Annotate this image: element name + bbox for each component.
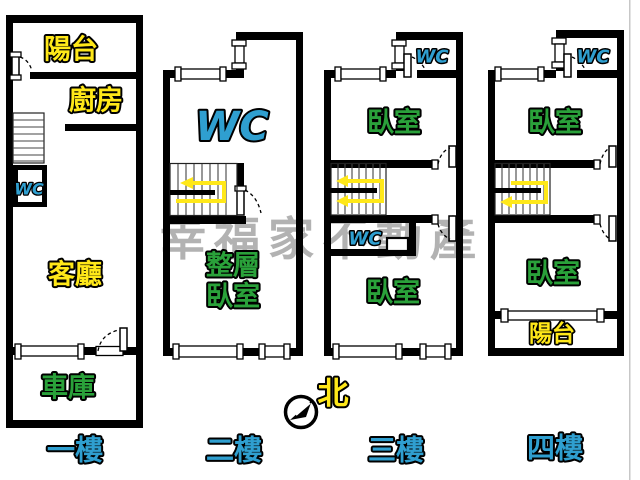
room-label-bedroom-upper-4f: 臥室 (528, 107, 582, 139)
room-label-bedroom-line1-2f: 整層 (206, 251, 260, 282)
floor-label-3f: 三樓 (368, 434, 424, 467)
wc-fixture-3f (387, 238, 408, 251)
upper-wall-window-2f (175, 67, 226, 81)
floor-label-4f: 四樓 (527, 432, 583, 465)
upper-wall-window-3f (335, 67, 386, 81)
living-room-window (15, 344, 84, 359)
staircase-3f (324, 164, 386, 216)
upper-wall-window-4f (495, 67, 544, 81)
stair-door-2f (235, 186, 261, 215)
compass: 北 (286, 376, 349, 428)
bedroom-door-upper-3f (432, 146, 456, 169)
room-label-bedroom-lower-4f: 臥室 (526, 258, 580, 290)
floor-1-walls (6, 15, 143, 428)
bottom-window-right-2f (259, 344, 290, 359)
floor-plan-drawing: 幸福家不動產 (0, 0, 640, 480)
staircase-2f (170, 164, 237, 216)
bottom-window-left-2f (173, 344, 243, 359)
room-label-kitchen-1f: 廚房 (69, 85, 123, 117)
floor-plan-canvas: 幸福家不動產 (0, 0, 640, 480)
balcony-door (10, 52, 32, 80)
room-label-balcony-1f: 陽台 (44, 34, 98, 66)
room-label-wc-upper-3f: WC (415, 47, 449, 68)
room-label-bedroom-lower-3f: 臥室 (366, 277, 420, 309)
floor-plan-1f: 陽台 廚房 WC 客廳 車庫 一樓 (6, 15, 143, 467)
edge-artifact-line (629, 0, 631, 480)
floor-label-2f: 二樓 (206, 434, 262, 467)
room-label-wc-upper-4f: WC (576, 47, 610, 68)
staircase-1f (13, 113, 44, 163)
staircase-4f (488, 164, 550, 216)
room-label-balcony-4f: 陽台 (529, 320, 575, 347)
room-label-wc-1f: WC (14, 180, 44, 199)
room-label-wc-middle-3f: WC (348, 229, 382, 250)
north-label: 北 (318, 376, 349, 412)
room-label-living-room-1f: 客廳 (48, 259, 102, 291)
bedroom-door-upper-4f (594, 146, 616, 169)
room-label-bedroom-upper-3f: 臥室 (367, 107, 421, 139)
floor-label-1f: 一樓 (47, 434, 103, 467)
bottom-window-right-3f (420, 344, 451, 359)
notch-window-2f (232, 40, 246, 69)
room-label-wc-2f: WC (195, 104, 268, 150)
room-label-bedroom-line2-2f: 臥室 (206, 281, 260, 313)
bedroom-door-lower-4f (594, 215, 616, 241)
bottom-window-left-3f (333, 344, 402, 359)
floor-plan-4f: WC 臥室 臥室 陽台 四樓 (488, 30, 624, 465)
room-label-garage-1f: 車庫 (41, 373, 95, 404)
